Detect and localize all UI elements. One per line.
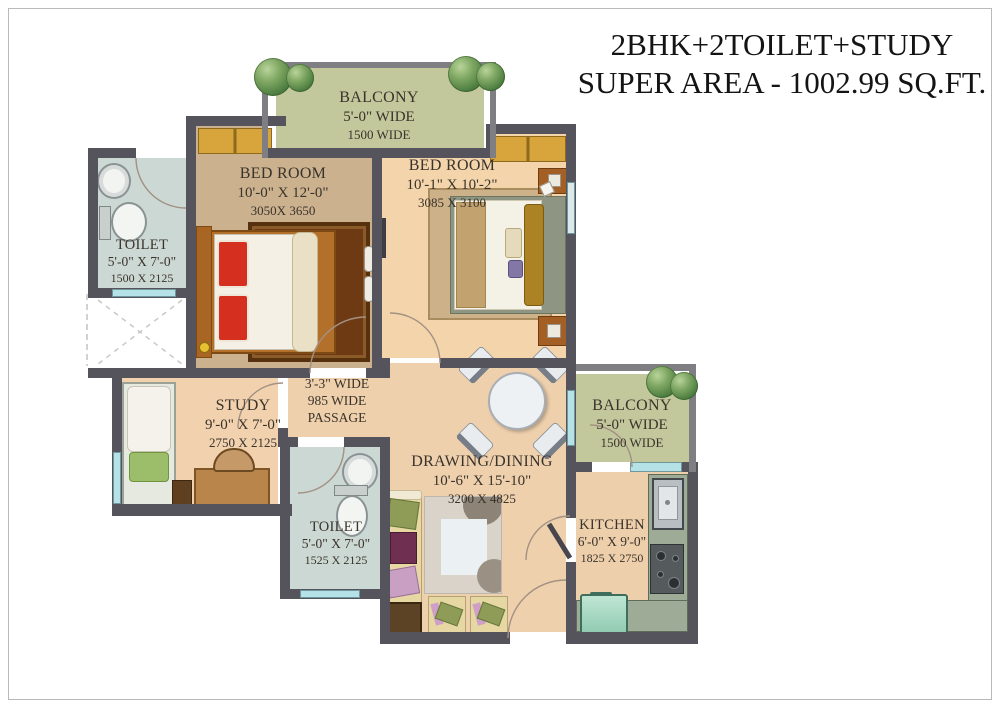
shaft-area xyxy=(98,298,186,368)
room-dim-ft: 9'-0" X 7'-0" xyxy=(205,416,281,435)
wall-segment xyxy=(112,504,292,516)
plan-title-line1: 2BHK+2TOILET+STUDY xyxy=(578,26,987,64)
room-label-study: STUDY 9'-0" X 7'-0" 2750 X 2125 xyxy=(205,396,281,451)
room-label-balcony-top: BALCONY 5'-0" WIDE 1500 WIDE xyxy=(339,88,418,143)
shrub-icon xyxy=(286,64,314,92)
sofa-cushion xyxy=(390,532,417,564)
room-label-bedroom-right: BED ROOM 10'-1" X 10'-2" 3085 X 3100 xyxy=(407,156,498,211)
room-dim-ft: 6'-0" X 9'-0" xyxy=(578,534,646,551)
rug-pattern xyxy=(477,559,502,593)
window xyxy=(112,289,176,297)
wall-segment xyxy=(372,148,382,368)
bed-pillow xyxy=(217,240,249,288)
room-name: BED ROOM xyxy=(238,164,329,184)
sofa-cushion xyxy=(385,566,420,599)
bed-pillow xyxy=(505,228,522,258)
burner xyxy=(668,577,680,589)
room-name: BED ROOM xyxy=(407,156,498,176)
study-bed-blanket xyxy=(127,386,171,452)
burner xyxy=(656,551,666,561)
room-name: BALCONY xyxy=(339,88,418,108)
room-dim-mm: 1825 X 2750 xyxy=(578,551,646,566)
wall-segment xyxy=(372,358,390,368)
room-label-balcony-right: BALCONY 5'-0" WIDE 1500 WIDE xyxy=(592,396,671,451)
fridge xyxy=(580,594,628,636)
room-name: TOILET xyxy=(302,518,370,536)
room-name: TOILET xyxy=(108,236,176,254)
kitchen-hob xyxy=(650,544,684,594)
window xyxy=(630,462,682,472)
wall-segment xyxy=(566,472,576,518)
wall-segment xyxy=(186,148,196,378)
wall-segment xyxy=(380,437,390,644)
room-label-bedroom-left: BED ROOM 10'-0" X 12'-0" 3050X 3650 xyxy=(238,164,329,219)
burner xyxy=(657,571,664,578)
room-dim-ft: 5'-0" X 7'-0" xyxy=(302,536,370,553)
wall-segment xyxy=(576,462,592,472)
room-dim-ft: 5'-0" WIDE xyxy=(339,108,418,127)
wardrobe xyxy=(198,128,272,154)
window xyxy=(567,182,575,234)
room-dim-mm: 3050X 3650 xyxy=(238,203,329,219)
window xyxy=(300,590,360,598)
study-bed-pillow xyxy=(129,452,169,482)
room-label-passage: 3'-3" WIDE 985 WIDE PASSAGE xyxy=(305,376,369,427)
room-dim-mm: 1525 X 2125 xyxy=(302,553,370,568)
room-dim-mm: 3200 X 4825 xyxy=(411,491,553,507)
fridge-handle xyxy=(590,592,612,596)
rug xyxy=(424,496,502,594)
room-label-toilet-left: TOILET 5'-0" X 7'-0" 1500 X 2125 xyxy=(108,236,176,286)
window xyxy=(113,452,121,504)
wall-segment xyxy=(566,632,698,644)
wall-segment xyxy=(280,437,290,599)
bed-pillow xyxy=(524,204,544,306)
kitchen-sink xyxy=(652,478,684,530)
passage-line3: PASSAGE xyxy=(305,410,369,427)
bed-headboard xyxy=(196,226,212,358)
shrub-icon xyxy=(476,62,505,91)
wall-segment xyxy=(566,124,576,368)
wall-segment xyxy=(486,124,576,134)
burner xyxy=(672,555,679,562)
coffee-table xyxy=(386,602,422,634)
armchair xyxy=(428,596,466,634)
desk xyxy=(194,468,270,506)
room-dim-mm: 1500 WIDE xyxy=(592,435,671,451)
wall-segment xyxy=(186,116,286,126)
wall-segment xyxy=(566,562,576,632)
armchair xyxy=(470,596,508,634)
blanket-roll xyxy=(292,232,318,352)
sink-drain xyxy=(665,500,670,505)
room-dim-mm: 1500 WIDE xyxy=(339,127,418,143)
cabinet xyxy=(172,480,192,506)
room-dim-ft: 10'-1" X 10'-2" xyxy=(407,176,498,195)
bedside-lamp xyxy=(199,342,210,353)
room-dim-ft: 10'-6" X 15'-10" xyxy=(411,472,553,491)
washbasin xyxy=(97,163,131,199)
bed-pillow xyxy=(217,294,249,342)
room-dim-ft: 5'-0" X 7'-0" xyxy=(108,254,176,271)
passage-line2: 985 WIDE xyxy=(305,393,369,410)
wall-segment xyxy=(688,462,698,644)
window xyxy=(567,390,575,446)
room-dim-ft: 5'-0" WIDE xyxy=(592,416,671,435)
nightstand-top xyxy=(547,324,561,338)
room-dim-ft: 10'-0" X 12'-0" xyxy=(238,184,329,203)
wall-segment xyxy=(88,148,98,298)
room-name: KITCHEN xyxy=(578,516,646,534)
shrub-icon xyxy=(670,372,698,400)
wc-tank xyxy=(99,206,111,240)
room-name: BALCONY xyxy=(592,396,671,416)
plan-title: 2BHK+2TOILET+STUDY SUPER AREA - 1002.99 … xyxy=(578,26,987,102)
room-dim-mm: 1500 X 2125 xyxy=(108,271,176,286)
room-name: STUDY xyxy=(205,396,281,416)
room-dim-mm: 2750 X 2125 xyxy=(205,435,281,451)
floorplan-page: { "title": { "line1": "2BHK+2TOILET+STUD… xyxy=(0,0,1000,708)
room-name: DRAWING/DINING xyxy=(411,452,553,472)
balcony-wall xyxy=(576,364,696,371)
room-dim-mm: 3085 X 3100 xyxy=(407,195,498,211)
wall-segment xyxy=(366,368,390,378)
bed-blanket xyxy=(456,202,486,308)
plan-title-line2: SUPER AREA - 1002.99 SQ.FT. xyxy=(578,64,987,102)
room-label-drawing-dining: DRAWING/DINING 10'-6" X 15'-10" 3200 X 4… xyxy=(411,452,553,507)
room-label-toilet-bottom: TOILET 5'-0" X 7'-0" 1525 X 2125 xyxy=(302,518,370,568)
room-label-kitchen: KITCHEN 6'-0" X 9'-0" 1825 X 2750 xyxy=(578,516,646,566)
wall-segment xyxy=(88,368,310,378)
bed-pillow xyxy=(508,260,523,278)
passage-line1: 3'-3" WIDE xyxy=(305,376,369,393)
dining-table xyxy=(488,372,546,430)
wardrobe xyxy=(490,136,566,162)
wall-segment xyxy=(440,358,566,368)
wall-segment xyxy=(380,632,510,644)
